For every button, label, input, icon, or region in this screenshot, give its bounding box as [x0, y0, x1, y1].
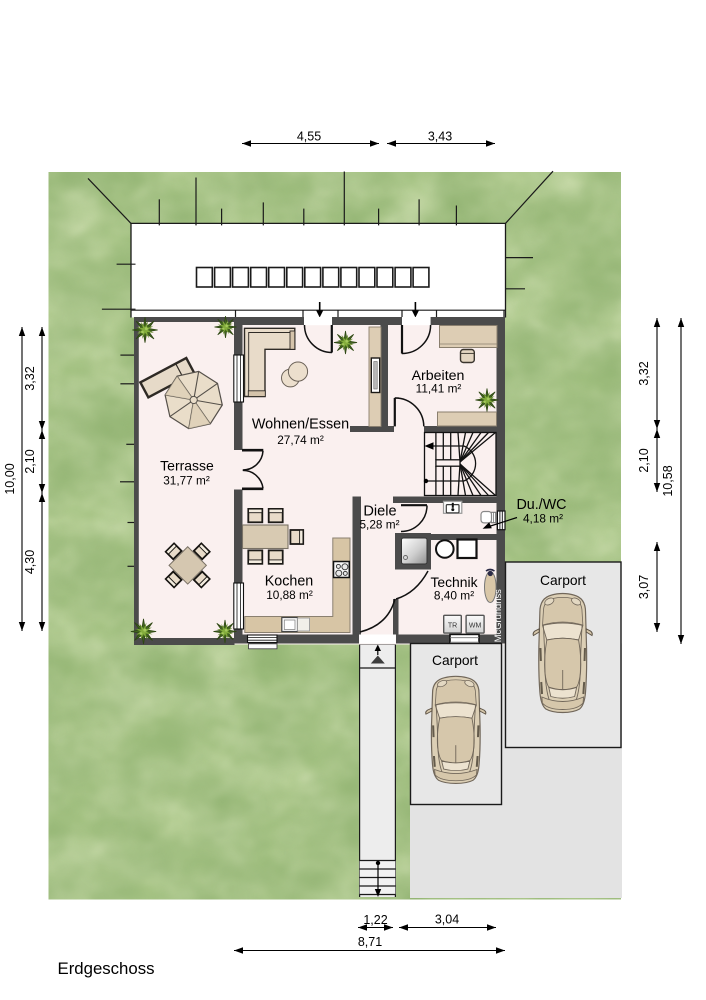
svg-text:3,07: 3,07	[637, 575, 651, 599]
svg-text:11,41 m²: 11,41 m²	[416, 382, 462, 396]
svg-text:8,71: 8,71	[358, 935, 382, 949]
svg-text:10,88 m²: 10,88 m²	[266, 588, 313, 602]
svg-text:31,77 m²: 31,77 m²	[163, 474, 210, 488]
svg-text:10,00: 10,00	[3, 463, 17, 494]
svg-text:Carport: Carport	[540, 573, 586, 588]
svg-text:3,43: 3,43	[428, 130, 452, 144]
svg-text:McGrundriss: McGrundriss	[492, 589, 503, 642]
svg-text:3,32: 3,32	[637, 361, 651, 385]
svg-text:5,28 m²: 5,28 m²	[360, 518, 400, 532]
svg-text:3,32: 3,32	[23, 366, 37, 390]
svg-text:4,30: 4,30	[23, 550, 37, 574]
svg-text:2,10: 2,10	[637, 448, 651, 472]
svg-text:3,04: 3,04	[435, 913, 459, 927]
svg-text:TR: TR	[448, 622, 457, 629]
svg-text:WM: WM	[469, 622, 482, 629]
svg-text:4,55: 4,55	[297, 130, 321, 144]
svg-text:8,40 m²: 8,40 m²	[434, 589, 474, 603]
svg-text:4,18 m²: 4,18 m²	[523, 511, 563, 525]
svg-text:Terrasse: Terrasse	[160, 458, 214, 474]
svg-text:2,10: 2,10	[23, 449, 37, 473]
svg-text:27,74 m²: 27,74 m²	[277, 433, 324, 447]
svg-text:Carport: Carport	[432, 653, 478, 668]
svg-text:Erdgeschoss: Erdgeschoss	[58, 959, 155, 978]
svg-text:Wohnen/Essen: Wohnen/Essen	[252, 417, 349, 433]
svg-text:Technik: Technik	[430, 574, 477, 590]
svg-text:10,58: 10,58	[661, 465, 675, 496]
svg-text:1,22: 1,22	[363, 913, 387, 927]
